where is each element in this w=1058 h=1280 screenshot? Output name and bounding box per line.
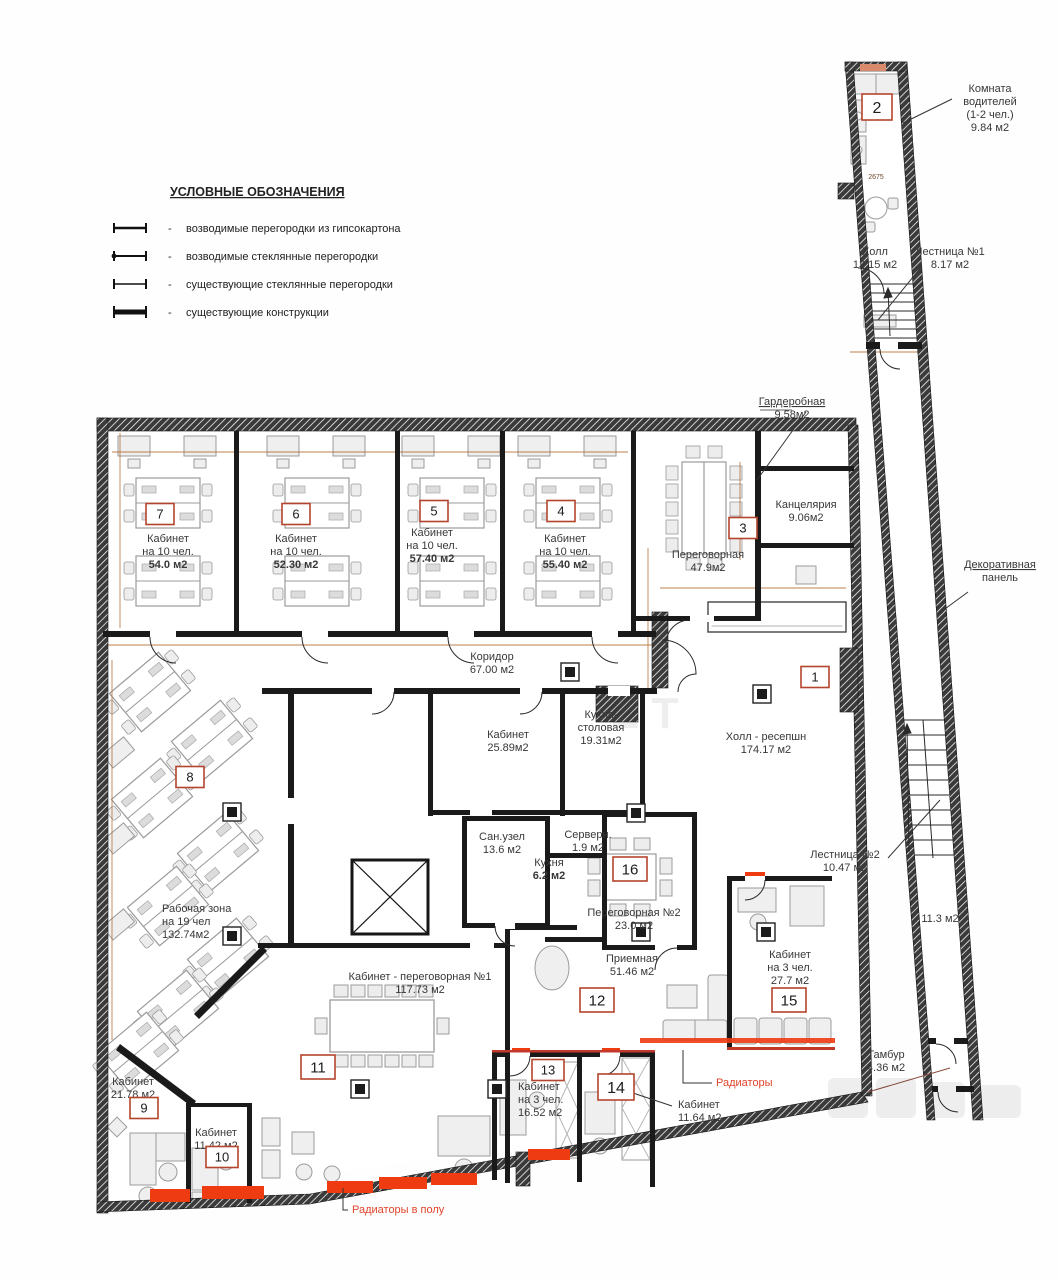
label-stairs-1: Лестница №18.17 м2 (915, 246, 985, 271)
label-office-1652: Кабинетна 3 чел.16.52 м2 (518, 1081, 563, 1119)
legend-item-gypsum-new: возводимые перегородки из гипсокартона (186, 223, 401, 235)
label-bathroom: Сан.узел13.6 м2 (479, 831, 525, 856)
room-marker-14: 14 (598, 1074, 634, 1100)
legend-symbol-glass-new (112, 251, 146, 261)
label-corridor: Коридор67.00 м2 (470, 651, 514, 676)
room-marker-4: 4 (547, 501, 575, 522)
room-marker-13: 13 (532, 1060, 564, 1081)
label-reception-room: Приемная51.46 м2 (606, 953, 658, 978)
legend-symbol-gypsum-new (114, 223, 146, 233)
label-wardrobe: Гардеробная9.58м2 (759, 396, 826, 421)
room-marker-9: 9 (130, 1098, 158, 1119)
room-marker-2: 2 (862, 94, 892, 120)
legend-item-glass-new: возводимые стеклянные перегородки (186, 251, 378, 263)
svg-text:14: 14 (607, 1080, 625, 1097)
label-tambour: Тамбур4.36 м2 (867, 1049, 905, 1074)
legend-symbol-glass-existing (114, 279, 146, 289)
label-kitchen: Кухня6.2 м2 (533, 857, 566, 882)
label-kitchen-dining: Кухня-столовая19.31м2 (578, 709, 625, 747)
label-radiators: Радиаторы (716, 1077, 773, 1089)
dim-text: 2675 (868, 174, 884, 181)
svg-text:7: 7 (156, 507, 163, 522)
room-marker-3: 3 (729, 518, 757, 539)
svg-text:3: 3 (739, 521, 746, 536)
svg-text:15: 15 (781, 992, 798, 1009)
room-marker-8: 8 (176, 767, 204, 788)
legend-symbol-existing-structures (114, 306, 146, 318)
room-marker-5: 5 (420, 501, 448, 522)
label-office-1164: Кабинет11.64 м2 (678, 1099, 721, 1124)
svg-text:5: 5 (430, 504, 437, 519)
label-office-6: Кабинетна 10 чел.52.30 м2 (270, 533, 322, 571)
legend-title: УСЛОВНЫЕ ОБОЗНАЧЕНИЯ (170, 185, 345, 199)
room-marker-16: 16 (613, 857, 647, 881)
label-office-7: Кабинетна 10 чел.54.0 м2 (142, 533, 194, 571)
legend-item-glass-existing: существующие стеклянные перегородки (186, 279, 393, 291)
label-office-2589: Кабинет25.89м2 (487, 729, 529, 754)
label-office-4: Кабинетна 10 чел.55.40 м2 (539, 533, 591, 571)
svg-text:10: 10 (215, 1150, 229, 1165)
label-driver-room: Комнатаводителей(1-2 чел.)9.84 м2 (963, 83, 1017, 134)
label-decor-panel: Декоративнаяпанель (964, 559, 1036, 584)
svg-text:8: 8 (186, 770, 193, 785)
svg-text:1: 1 (811, 670, 818, 685)
room-marker-7: 7 (146, 504, 174, 525)
svg-text:9: 9 (140, 1101, 147, 1116)
svg-text:16: 16 (622, 861, 639, 878)
label-office-277: Кабинетна 3 чел.27.7 м2 (767, 949, 812, 987)
svg-text:4: 4 (557, 504, 564, 519)
legend: УСЛОВНЫЕ ОБОЗНАЧЕНИЯ - - - - (112, 185, 402, 319)
room-marker-15: 15 (772, 988, 806, 1012)
svg-text:12: 12 (589, 992, 606, 1009)
floor-plan-drawing: Е Т УСЛОВНЫЕ ОБОЗНАЧЕНИЯ (0, 0, 1058, 1280)
room-marker-1: 1 (801, 667, 829, 688)
svg-text:6: 6 (292, 507, 299, 522)
label-office-5: Кабинетна 10 чел.57.40 м2 (406, 527, 458, 565)
room-marker-10: 10 (206, 1147, 238, 1168)
legend-dash-4: - (168, 307, 172, 319)
room-marker-11: 11 (301, 1055, 335, 1079)
room-marker-6: 6 (282, 504, 310, 525)
legend-dash-3: - (168, 279, 172, 291)
floor-areas (103, 70, 973, 1207)
svg-text:2: 2 (873, 100, 882, 117)
legend-dash-1: - (168, 223, 172, 235)
room-marker-12: 12 (580, 988, 614, 1012)
legend-item-existing-structures: существующие конструкции (186, 307, 329, 319)
dimension-texts: 2675 (868, 174, 884, 181)
label-radiators-floor: Радиаторы в полу (352, 1204, 445, 1216)
legend-dash-2: - (168, 251, 172, 263)
floor-plan-page: Е Т УСЛОВНЫЕ ОБОЗНАЧЕНИЯ (0, 0, 1058, 1280)
svg-text:13: 13 (541, 1063, 555, 1078)
label-area-113: 11.3 м2 (921, 913, 958, 925)
svg-text:11: 11 (310, 1059, 326, 1076)
